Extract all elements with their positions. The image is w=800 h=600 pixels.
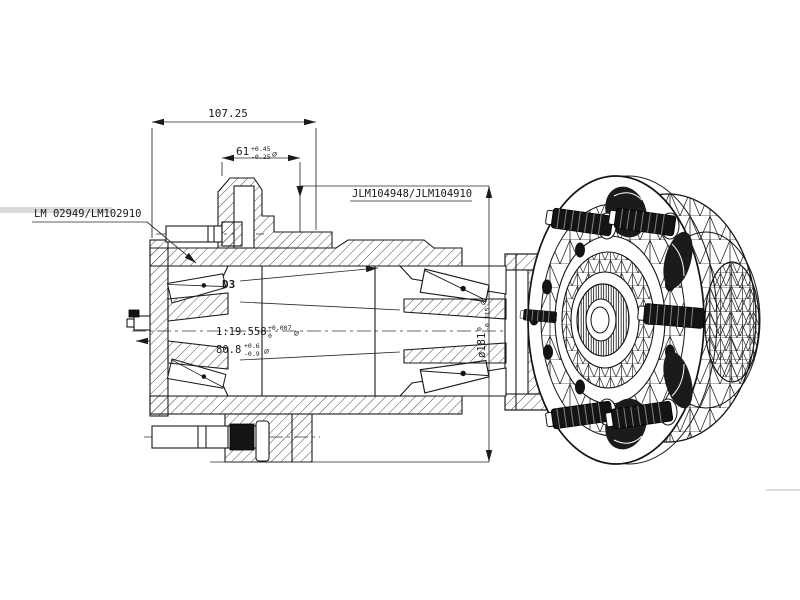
shell-lower: [150, 396, 462, 414]
pilot-width-tol-lower: -0.25: [251, 153, 271, 161]
hub-width-tol-upper: +0.6: [244, 342, 260, 350]
hub-width-tol-lower: -0.9: [244, 350, 260, 358]
hub-width-suffix: ⌀: [264, 347, 269, 357]
bearing-outboard-label: LM 02949/LM102910: [34, 208, 141, 220]
pilot-width-value: 61: [236, 145, 249, 158]
flange-diameter-value: ø181: [476, 333, 488, 358]
stud-head: [230, 424, 254, 450]
label-detail-marker: D3: [222, 268, 378, 291]
isometric-view: [520, 176, 800, 490]
bearing-upper-outboard: [167, 266, 228, 321]
hub-width-value: 80.8: [216, 344, 241, 356]
wheel-stud-top: [166, 222, 242, 246]
overall-width-value: 107.25: [208, 107, 248, 120]
bolt-hole: [543, 345, 553, 360]
bolt-hole: [575, 380, 585, 395]
bore-taper-tol-upper: +0.007: [268, 324, 292, 332]
grease-fitting: [127, 310, 150, 330]
flange-diameter-tol-lower: -0.115: [484, 307, 492, 331]
technical-drawing-canvas: 107.25 61 +0.45 -0.25 ⌀ JLM104948/JLM104…: [0, 0, 800, 600]
detail-marker-text: D3: [222, 278, 235, 291]
pilot-width-suffix: ⌀: [272, 150, 277, 160]
bearing-lower-inboard: [400, 343, 506, 396]
flange-diameter-tol-upper: 0: [476, 327, 484, 331]
bore-taper-tol-lower: 0: [268, 332, 272, 340]
label-bearing-inboard: JLM104948/JLM104910: [300, 186, 489, 201]
bore-taper-suffix: ⌀: [294, 329, 299, 339]
flange-diameter-suffix: ⌀: [479, 300, 489, 305]
bore-taper-value: 1:19.558: [216, 326, 267, 338]
bolt-hole: [575, 243, 585, 258]
section-view: 107.25 61 +0.45 -0.25 ⌀ JLM104948/JLM104…: [0, 107, 584, 462]
bearing-inboard-label: JLM104948/JLM104910: [352, 188, 472, 200]
pilot-width-tol-upper: +0.45: [251, 145, 271, 153]
dimension-bore-taper: 1:19.558 +0.007 0 ⌀: [216, 324, 299, 340]
stud-washer: [256, 421, 269, 461]
hub-body: [150, 178, 567, 462]
bolt-hole: [542, 280, 552, 295]
